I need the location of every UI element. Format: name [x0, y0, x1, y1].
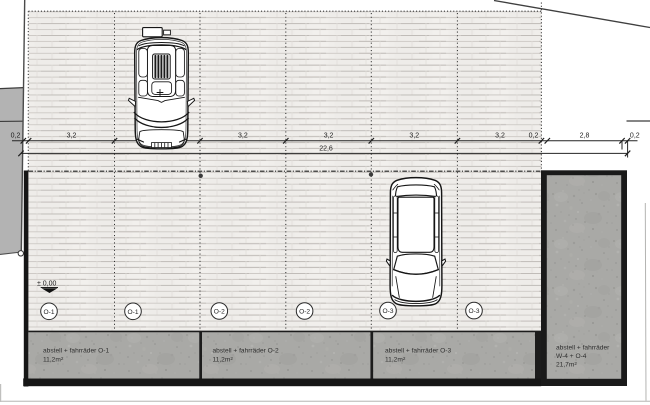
svg-text:O-3: O-3 — [469, 308, 480, 315]
svg-text:O-1: O-1 — [44, 309, 55, 316]
svg-text:3,2: 3,2 — [238, 132, 248, 139]
svg-text:22,6: 22,6 — [319, 145, 333, 152]
svg-text:3,2: 3,2 — [324, 132, 334, 139]
svg-text:3,2: 3,2 — [409, 132, 419, 139]
svg-text:O-2: O-2 — [214, 309, 225, 316]
svg-text:abstell + fahrräder O-2: abstell + fahrräder O-2 — [213, 348, 279, 355]
svg-text:± 0,00: ± 0,00 — [37, 281, 57, 288]
svg-text:W-4 + O-4: W-4 + O-4 — [556, 353, 587, 360]
svg-text:abstell + fahrräder O-1: abstell + fahrräder O-1 — [43, 348, 109, 355]
svg-text:11,2m2: 11,2m2 — [385, 356, 406, 364]
svg-text:abstell + fahrräder: abstell + fahrräder — [556, 345, 610, 352]
svg-text:O-3: O-3 — [383, 308, 394, 315]
svg-text:0,2: 0,2 — [529, 132, 539, 139]
svg-text:3,2: 3,2 — [495, 132, 505, 139]
svg-text:abstell + fahrräder O-3: abstell + fahrräder O-3 — [385, 348, 451, 355]
svg-text:11,2m2: 11,2m2 — [213, 356, 234, 364]
svg-text:3,2: 3,2 — [67, 132, 77, 139]
svg-text:2,8: 2,8 — [580, 132, 590, 139]
svg-text:11,2m2: 11,2m2 — [43, 356, 64, 364]
svg-text:0,2: 0,2 — [11, 132, 21, 139]
svg-text:O-2: O-2 — [299, 309, 310, 316]
svg-text:21,7m2: 21,7m2 — [556, 361, 577, 369]
svg-text:0,2: 0,2 — [630, 132, 640, 139]
svg-text:O-1: O-1 — [128, 309, 139, 316]
